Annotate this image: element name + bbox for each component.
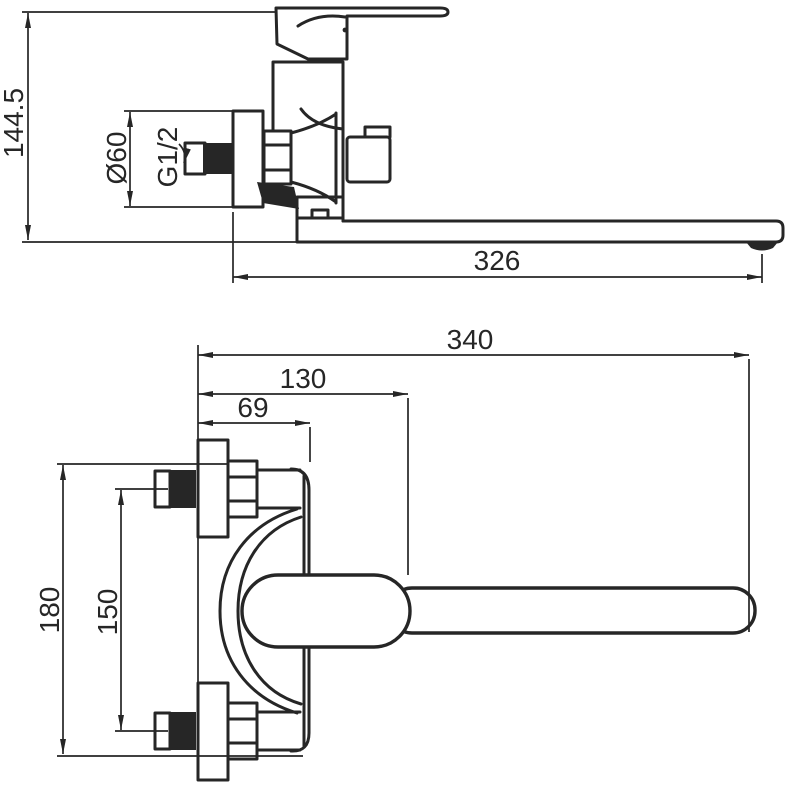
faucet-technical-drawing: 144.5 Ø60 G1/2 326 (0, 0, 792, 792)
wall-escutcheon (233, 111, 263, 207)
dim-inlet-centers: 150 (92, 489, 168, 731)
escutcheon-upper (198, 440, 228, 537)
inlet-pipe (185, 143, 205, 174)
plan-view: 340 130 69 180 150 (34, 324, 755, 780)
shower-outlet (347, 137, 390, 182)
hex-facets-upper (228, 477, 257, 501)
handle-lever (276, 8, 448, 59)
handle-curve (298, 16, 345, 26)
hex-nut-upper (228, 461, 257, 517)
pipe-lower (257, 712, 300, 750)
escutcheon-lower (198, 683, 228, 780)
thread-nipple (203, 143, 233, 174)
side-view: 144.5 Ø60 G1/2 326 (0, 8, 783, 283)
dim-spout-reach-label: 326 (474, 245, 521, 276)
thread-nipple-upper (170, 470, 196, 508)
upper-inlet (155, 440, 300, 537)
thread-nipple-lower (170, 712, 196, 750)
hex-nut (264, 131, 291, 184)
label-thread-text: G1/2 (152, 127, 183, 188)
dim-inlet-centers-label: 150 (92, 589, 123, 636)
spout-plan (390, 588, 755, 633)
dim-spout-reach: 326 (233, 212, 762, 283)
dim-body-depth-label: 69 (237, 392, 268, 423)
dim-flange-label: Ø60 (101, 132, 132, 185)
dim-outer-span-label: 180 (34, 587, 65, 634)
drawing-sheet: 144.5 Ø60 G1/2 326 (0, 0, 792, 792)
dim-body-depth: 69 (198, 392, 310, 462)
spout-side (297, 218, 783, 242)
hex-nut-lower (228, 703, 257, 759)
pipe-upper (257, 470, 300, 508)
hex-facets-lower (228, 719, 257, 743)
handle-pin (343, 28, 348, 33)
hex-nut-facets (264, 145, 291, 170)
dim-height-label: 144.5 (0, 88, 29, 158)
aerator (746, 242, 778, 251)
lower-inlet (155, 683, 300, 780)
label-thread: G1/2 (152, 127, 185, 188)
handle-plan (242, 575, 410, 647)
dim-overall-label: 340 (447, 324, 494, 355)
dim-spout-start-label: 130 (280, 363, 327, 394)
